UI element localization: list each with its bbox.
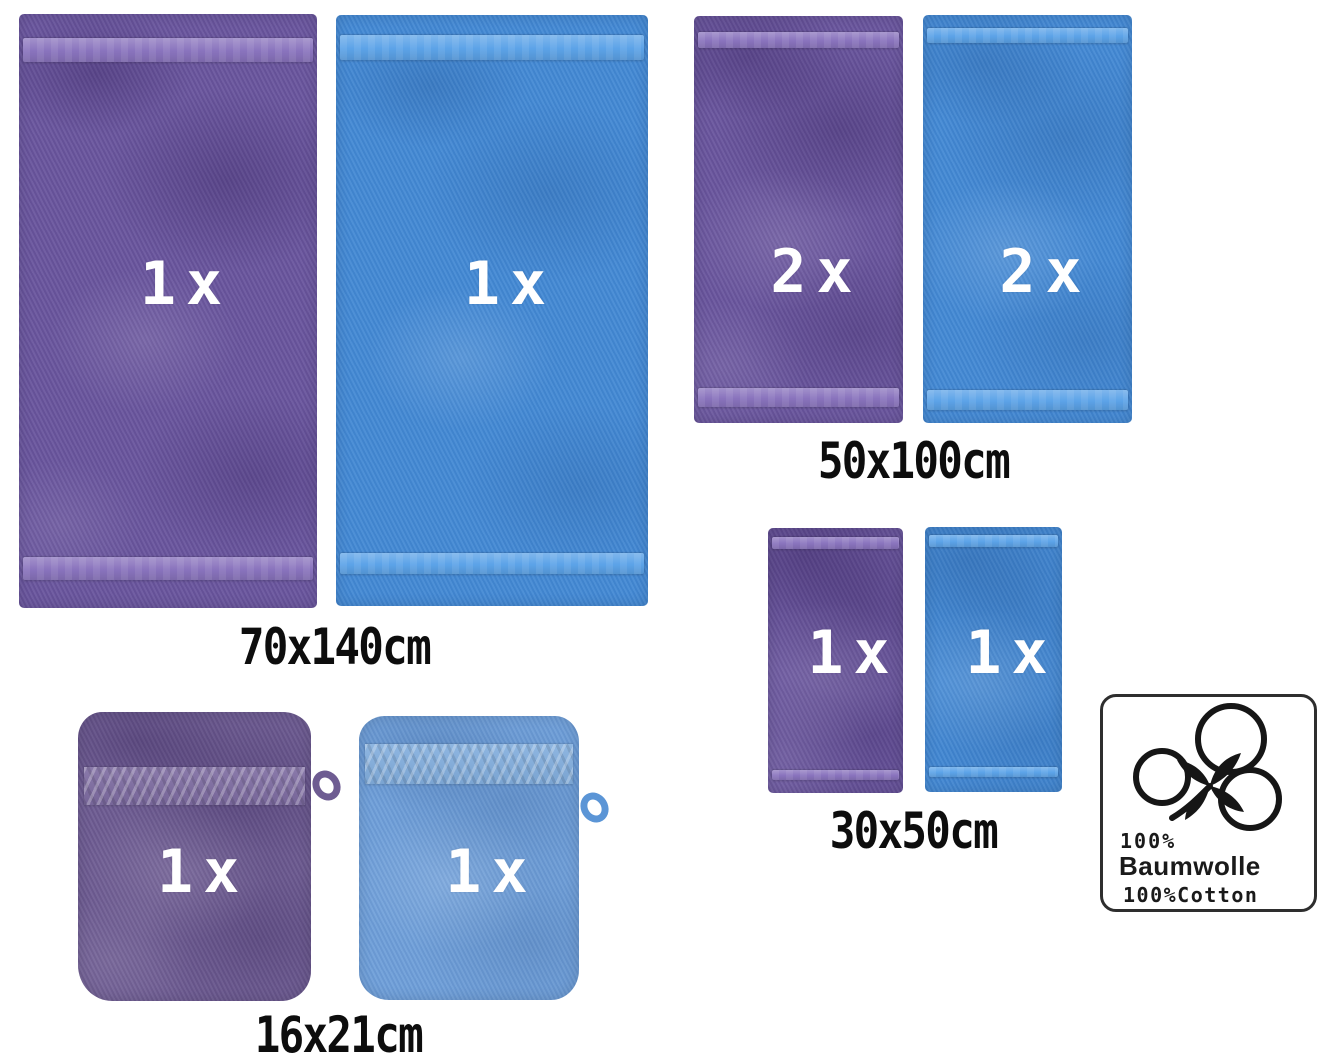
towel-border-band [698, 388, 899, 407]
hanging-loop [307, 765, 346, 806]
mitt-chevron-band [365, 744, 573, 784]
cotton-badge: 100% Baumwolle 100%Cotton [1100, 694, 1317, 912]
towel-border-band [929, 767, 1058, 777]
towel-border-band [927, 390, 1128, 410]
size-caption-text: 30x50cm [829, 806, 996, 856]
towel-30x50-purple: 1 x [768, 528, 903, 793]
wash-mitt-blue: 1 x [359, 716, 579, 1000]
count-label: 1 x [144, 837, 226, 907]
size-caption-text: 70x140cm [238, 622, 429, 672]
towel-border-band [23, 557, 313, 580]
towel-border-band [772, 770, 899, 780]
towel-group-70x140: 1 x 1 x 70x140cm [0, 0, 680, 690]
towel-border-band [927, 28, 1128, 43]
size-caption-text: 16x21cm [254, 1010, 421, 1060]
count-label: 1 x [794, 618, 876, 688]
size-caption-text: 50x100cm [817, 436, 1008, 486]
wash-mitt-group-16x21: 1 x 1 x 16x21cm [0, 690, 680, 1049]
hanging-loop [575, 787, 614, 828]
towel-border-band [23, 38, 313, 62]
count-label: 1 x [451, 249, 533, 319]
count-label: 1 x [432, 837, 514, 907]
badge-cotton-label: 100%Cotton [1123, 883, 1258, 907]
towel-70x140-blue: 1 x [336, 15, 648, 606]
towel-30x50-blue: 1 x [925, 527, 1062, 792]
cotton-flower-icon [1125, 701, 1300, 841]
towel-50x100-purple: 2 x [694, 16, 903, 423]
badge-baumwolle-label: Baumwolle [1119, 851, 1261, 882]
towel-border-band [698, 32, 899, 48]
size-caption: 16x21cm [158, 1010, 518, 1060]
towel-50x100-blue: 2 x [923, 15, 1132, 423]
badge-percent-label: 100% [1120, 829, 1176, 853]
count-label: 1 x [952, 618, 1034, 688]
count-label: 2 x [986, 237, 1068, 307]
towel-group-30x50: 1 x 1 x 30x50cm [700, 500, 1120, 880]
towel-border-band [929, 535, 1058, 547]
wash-mitt-purple: 1 x [78, 712, 311, 1001]
size-caption: 50x100cm [733, 436, 1093, 486]
towel-70x140-purple: 1 x [19, 14, 317, 608]
towel-border-band [340, 35, 644, 60]
size-caption: 70x140cm [154, 622, 514, 672]
size-caption: 30x50cm [733, 806, 1093, 856]
count-label: 2 x [757, 237, 839, 307]
count-label: 1 x [127, 249, 209, 319]
product-image-canvas: { "background_color": "#ffffff", "text_c… [0, 0, 1328, 1049]
mitt-chevron-band [84, 767, 305, 805]
towel-border-band [340, 553, 644, 574]
towel-group-50x100: 2 x 2 x 50x100cm [660, 0, 1160, 500]
towel-border-band [772, 537, 899, 549]
